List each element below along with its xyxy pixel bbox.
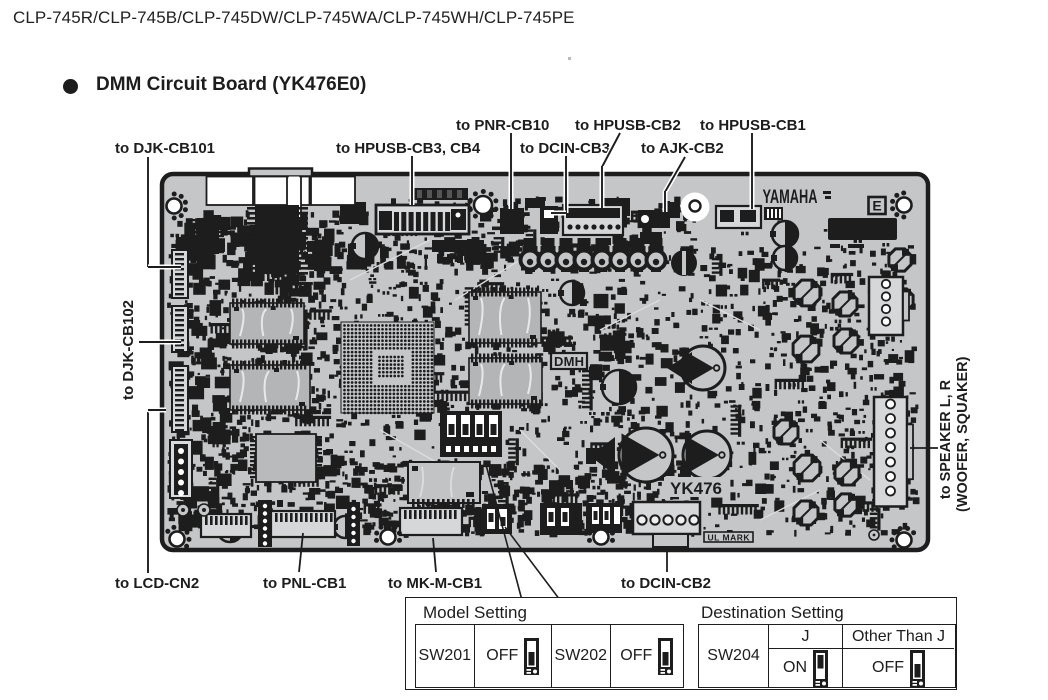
svg-text:YK476: YK476 [670, 479, 722, 498]
svg-text:YAMAHA: YAMAHA [763, 187, 818, 208]
svg-text:E: E [872, 198, 881, 214]
svg-text:DMH: DMH [554, 354, 584, 369]
svg-text:UL MARK: UL MARK [708, 533, 751, 543]
